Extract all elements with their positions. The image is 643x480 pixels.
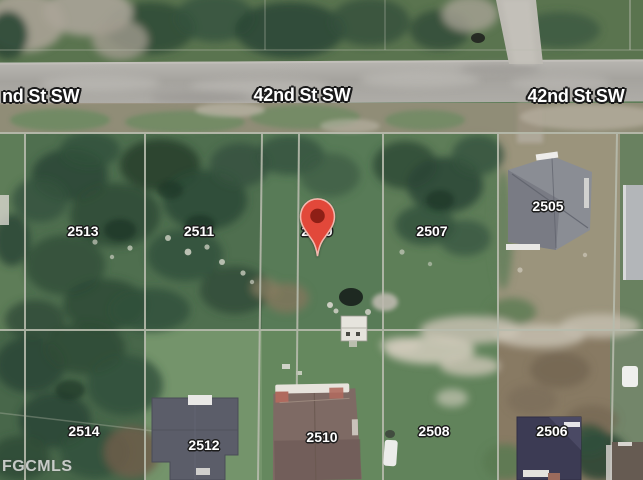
- parcel-number-label: 2506: [536, 423, 567, 439]
- street-label: 42nd St SW: [527, 86, 624, 107]
- house-bottom-right: [606, 442, 643, 480]
- parcel-number-label: 2505: [532, 198, 563, 214]
- parcel-number-label: 2511: [184, 223, 214, 239]
- street-label: 42nd St SW: [253, 85, 350, 106]
- parcel-number-label: 2507: [416, 223, 447, 239]
- map-pin-icon[interactable]: [298, 197, 337, 259]
- parcel-number-label: 2510: [306, 429, 337, 445]
- parcel-number-label: 2514: [68, 423, 99, 439]
- road-shoulder: [0, 103, 643, 134]
- building-right-edge: [623, 185, 643, 280]
- street-label: nd St SW: [2, 86, 79, 107]
- parcel-number-label: 2508: [418, 423, 449, 439]
- mls-watermark: FGCMLS: [2, 458, 73, 476]
- parcel-number-label: 2512: [188, 437, 219, 453]
- satellite-map-view[interactable]: nd St SW 42nd St SW 42nd St SW 2513 2511…: [0, 0, 643, 480]
- parcel-number-label: 2513: [67, 223, 98, 239]
